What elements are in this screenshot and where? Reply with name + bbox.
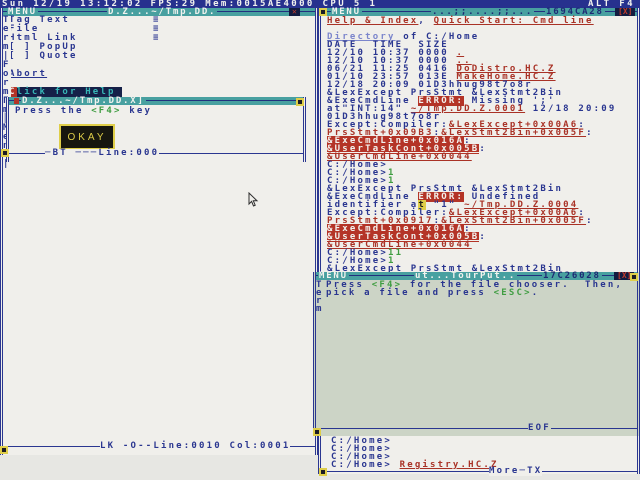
window-handle[interactable] xyxy=(313,428,321,436)
right-menu-label[interactable]: MENU xyxy=(331,8,362,16)
terminal-text: Press the xyxy=(15,106,91,116)
left-editor-window: MENU D.Z...~/Tmp.DD. ✕ Tag Text≡File≡Htm… xyxy=(0,8,318,455)
doc-link[interactable]: Quick Start: Cmd line xyxy=(434,16,594,26)
terminal-text: : xyxy=(479,232,487,242)
terminal-text: : xyxy=(479,144,487,154)
left-window-statusline: LK -O--Line:0010 Col:0001 xyxy=(3,442,315,451)
terminal-line: Help & Index, Quick Start: Cmd line xyxy=(327,17,594,25)
right-status-text: More─TX xyxy=(489,467,542,476)
file-chooser-popup-window: MENU ut...TourPut.. 17C26028 [X] Press <… xyxy=(313,272,640,436)
popup-eof-line: EOF xyxy=(316,424,637,433)
key-hint: <ESC> xyxy=(494,288,532,298)
border-char: m xyxy=(316,305,324,313)
terminal-text: key xyxy=(122,106,152,116)
popup-doc-title: ut...TourPut.. xyxy=(414,272,517,280)
right-doc-title: ...;;....;;... xyxy=(431,8,534,16)
terminal-text: . xyxy=(532,288,540,298)
close-icon[interactable]: ✕ xyxy=(289,8,300,16)
mouse-cursor xyxy=(247,192,260,207)
terminal-text: pick a file and press xyxy=(326,288,494,298)
terminal-text: : xyxy=(586,128,594,138)
menu-item-quote[interactable]: [ ] Quote xyxy=(9,52,78,61)
window-handle[interactable] xyxy=(319,468,327,476)
form-popup-titlebar[interactable]: D.Z...~/Tmp.DD.X] xyxy=(9,97,303,105)
terminal-text: : xyxy=(586,216,594,226)
terminal-line: Press the <F4> key xyxy=(15,107,152,116)
right-window-titlebar[interactable]: MENU ...;;....;;... 1694CA28 [X] xyxy=(321,8,637,16)
popup-titlebar[interactable]: MENU ut...TourPut.. 17C26028 [X] xyxy=(316,272,637,280)
system-status-bar: Sun 12/19 13:12:02 FPS:29 Mem:0015AE4000… xyxy=(0,0,640,8)
popup-menu-label[interactable]: MENU xyxy=(318,272,349,280)
okay-button[interactable]: OKAY xyxy=(59,124,115,150)
eof-label: EOF xyxy=(528,424,551,433)
window-handle[interactable] xyxy=(630,273,638,281)
left-status-text: LK -O--Line:0010 Col:0001 xyxy=(100,442,290,451)
window-handle[interactable] xyxy=(1,149,9,157)
left-doc-title: D.Z...~/Tmp.DD. xyxy=(107,8,217,16)
templeos-screen: Sun 12/19 13:12:02 FPS:29 Mem:0015AE4000… xyxy=(0,0,640,480)
submenu-icon: ≡ xyxy=(153,34,158,43)
form-popup-window: D.Z...~/Tmp.DD.X] Press the <F4> key OKA… xyxy=(6,97,306,162)
window-handle[interactable] xyxy=(319,8,327,16)
terminal-text: 12/18 20:09 xyxy=(525,104,616,114)
window-handle[interactable] xyxy=(0,446,8,454)
popup-task-address: 17C26028 xyxy=(542,272,602,280)
doc-link[interactable]: Help & Index xyxy=(327,16,418,26)
window-handle[interactable] xyxy=(296,98,304,106)
right-task-address: 1694CA28 xyxy=(545,8,605,16)
menu-item-abort[interactable]: Abort xyxy=(9,70,47,79)
form-popup-title: D.Z...~/Tmp.DD.X] xyxy=(21,97,146,105)
doc-icon xyxy=(14,98,19,104)
right-window-statusline: More─TX xyxy=(321,467,637,476)
terminal-text: , xyxy=(418,16,433,26)
form-popup-statusline: ─BT ───Line:000 xyxy=(9,149,303,158)
form-status-text: ─BT ───Line:000 xyxy=(45,149,159,158)
terminal-line: pick a file and press <ESC>. xyxy=(326,289,539,297)
key-hint: <F4> xyxy=(91,106,121,116)
close-icon[interactable]: [X] xyxy=(615,8,635,16)
